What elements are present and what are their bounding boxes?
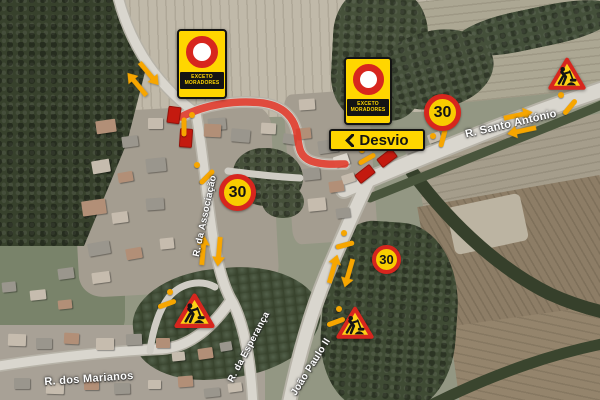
roadworks-sign: [336, 305, 374, 340]
speed-limit-value: 30: [379, 252, 393, 267]
arrow-down-icon: [211, 236, 227, 267]
speed-limit-30-sign: 30: [424, 94, 461, 131]
road-closed-barrier: [166, 106, 181, 125]
sign-point-marker: [194, 162, 200, 168]
exception-line2: MORADORES: [349, 107, 387, 113]
sign-point-marker: [167, 289, 173, 295]
sign-point-marker: [341, 230, 347, 236]
sign-point-marker: [430, 133, 436, 139]
speed-limit-value: 30: [229, 184, 247, 202]
roadworks-sign: [548, 56, 586, 91]
speed-limit-30-sign: 30: [219, 174, 256, 211]
exception-panel: EXCETO MORADORES: [347, 99, 389, 116]
left-chevron-icon: [345, 134, 354, 147]
sign-point-marker: [189, 112, 195, 118]
roadworks-sign: [174, 292, 215, 329]
exception-line2: MORADORES: [182, 80, 222, 86]
speed-limit-value: 30: [434, 104, 452, 122]
satellite-map: 30 30 30 EXCETO MORADORES EXCETO MORADOR…: [0, 0, 600, 400]
no-entry-except-residents-sign: EXCETO MORADORES: [177, 29, 227, 99]
sign-point-marker: [558, 92, 564, 98]
sign-bar-marker: [182, 118, 187, 137]
no-entry-icon: [353, 64, 384, 95]
no-entry-except-residents-sign: EXCETO MORADORES: [344, 57, 392, 125]
detour-sign: Desvio: [329, 129, 425, 151]
speed-limit-30-sign: 30: [372, 245, 401, 274]
no-entry-icon: [186, 36, 218, 68]
exception-panel: EXCETO MORADORES: [180, 72, 224, 89]
detour-label: Desvio: [359, 132, 408, 149]
closed-route-overlay: [0, 0, 600, 400]
